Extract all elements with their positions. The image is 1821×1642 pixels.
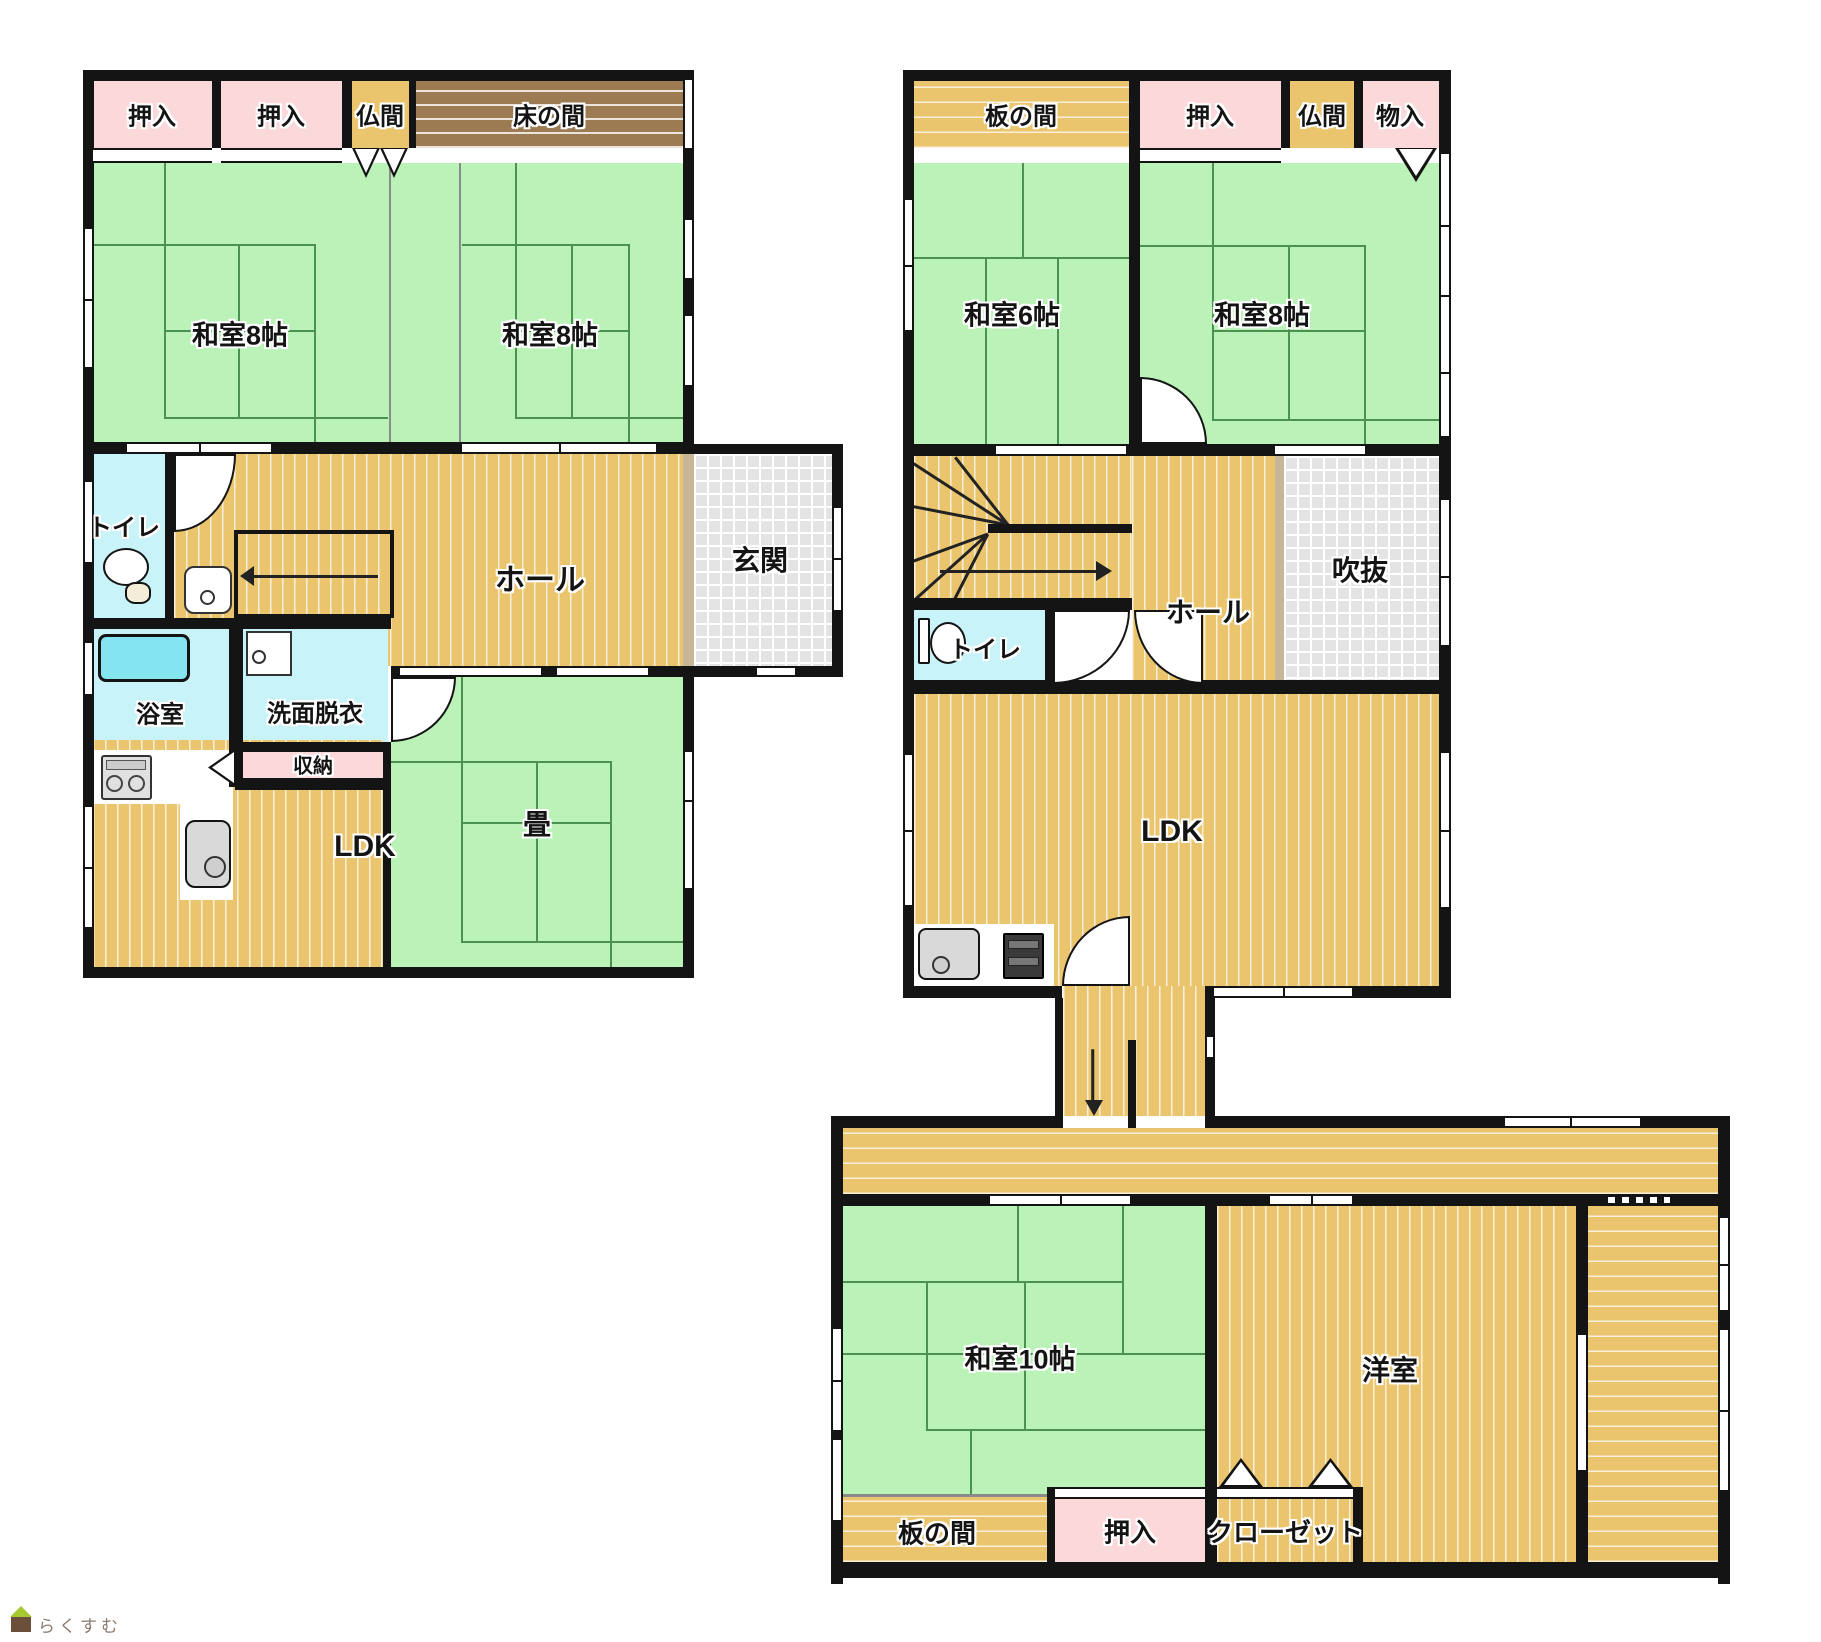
window-22 bbox=[1275, 444, 1365, 456]
room-label-16: 仏間 bbox=[1298, 97, 1346, 132]
window-tick-3 bbox=[1570, 1116, 1572, 1128]
room-label-20: ホール bbox=[1166, 591, 1250, 631]
corridor-annex bbox=[843, 1128, 1718, 1194]
window-tick-8 bbox=[683, 800, 694, 802]
window-10 bbox=[93, 148, 212, 163]
room-label-18: 和室6帖 bbox=[964, 294, 1060, 333]
wall-34 bbox=[903, 680, 1451, 694]
room-label-13: 畳 bbox=[523, 803, 551, 843]
wall-6 bbox=[342, 81, 352, 148]
room-label-24: 和室10帖 bbox=[964, 1338, 1075, 1377]
window-tick-7 bbox=[83, 867, 94, 869]
genkan-edge bbox=[683, 454, 694, 666]
window-tick-5 bbox=[1311, 1194, 1313, 1206]
window-15 bbox=[757, 666, 795, 677]
window-tick-1 bbox=[559, 442, 561, 454]
wall-9 bbox=[165, 454, 174, 618]
wall-42 bbox=[831, 1562, 1730, 1578]
room-label-14: 板の間 bbox=[985, 97, 1057, 132]
room-label-27: 押入 bbox=[1104, 1513, 1156, 1550]
wall-25 bbox=[1352, 986, 1451, 998]
window-4 bbox=[683, 80, 694, 148]
window-23 bbox=[1140, 148, 1281, 163]
room-label-7: ホール bbox=[495, 555, 585, 599]
window-25 bbox=[1205, 1037, 1215, 1057]
bathtub-1f bbox=[98, 634, 190, 682]
wall-39 bbox=[1205, 1116, 1730, 1128]
wall-28 bbox=[1354, 81, 1363, 148]
window-34 bbox=[1055, 1487, 1205, 1499]
wall-0 bbox=[83, 70, 694, 81]
tatami-line-1 bbox=[314, 244, 316, 442]
wall-5 bbox=[212, 81, 221, 148]
window-11 bbox=[221, 148, 342, 163]
sink-1f bbox=[185, 820, 231, 888]
tatami-line-14 bbox=[391, 761, 610, 763]
window-26 bbox=[1505, 1116, 1640, 1128]
logo: らくすむ bbox=[8, 1606, 208, 1636]
wall-38 bbox=[831, 1116, 1063, 1128]
window-tick-0 bbox=[199, 442, 201, 454]
wall-14 bbox=[235, 778, 391, 790]
tatami-line-35 bbox=[926, 1429, 1205, 1431]
wall-48 bbox=[1576, 1470, 1588, 1574]
tatami-line-6 bbox=[515, 163, 517, 417]
room-label-1: 押入 bbox=[257, 97, 305, 132]
window-tick-18 bbox=[1718, 1410, 1730, 1412]
room-label-17: 物入 bbox=[1376, 97, 1424, 132]
window-0 bbox=[83, 229, 94, 367]
wall-29 bbox=[1129, 148, 1140, 444]
stove-2f-grate-a bbox=[1008, 940, 1039, 949]
tatami-line-24 bbox=[1140, 245, 1364, 247]
stair-line-8 bbox=[1092, 1049, 1095, 1103]
washbasin-1f-drain bbox=[200, 590, 215, 605]
wall-32 bbox=[903, 598, 1132, 610]
toilet-2f-tank bbox=[918, 618, 930, 664]
window-tick-14 bbox=[1439, 576, 1451, 578]
wall-17 bbox=[683, 444, 843, 454]
room-label-0: 押入 bbox=[128, 97, 176, 132]
wall-36 bbox=[1205, 986, 1215, 1128]
tatami-line-23 bbox=[1364, 245, 1366, 444]
room-label-26: 板の間 bbox=[898, 1514, 976, 1551]
wall-26 bbox=[1129, 81, 1140, 148]
tatami-line-0 bbox=[164, 163, 166, 417]
room-label-19: 和室8帖 bbox=[1214, 294, 1310, 333]
room-label-12: LDK bbox=[334, 830, 396, 864]
tatami-line-8 bbox=[462, 244, 628, 246]
window-tick-9 bbox=[903, 265, 914, 267]
tatami-line-36 bbox=[970, 1429, 972, 1495]
tatami-line-30 bbox=[1122, 1206, 1124, 1353]
veranda-annex bbox=[1588, 1206, 1718, 1562]
wall-23 bbox=[903, 986, 1062, 998]
window-2 bbox=[83, 643, 94, 694]
stove-1f-bar bbox=[106, 760, 146, 770]
window-tick-10 bbox=[903, 830, 914, 832]
room-label-10: 洗面脱衣 bbox=[267, 694, 363, 729]
room-label-5: 和室8帖 bbox=[502, 314, 598, 353]
window-7 bbox=[683, 752, 694, 888]
tatami-line-19 bbox=[914, 257, 1129, 259]
window-tick-16 bbox=[832, 558, 843, 560]
wall-37 bbox=[1128, 1040, 1136, 1128]
tatami-line-21 bbox=[1057, 257, 1059, 444]
tatami-line-25 bbox=[1212, 419, 1439, 421]
tatami-line-28 bbox=[1017, 1206, 1019, 1281]
toilet-1f-bowl bbox=[103, 548, 149, 586]
stove-1f-burner-a bbox=[106, 775, 123, 792]
room-label-6: トイレ bbox=[88, 508, 160, 543]
dashed-opening-0 bbox=[1608, 1197, 1670, 1203]
window-21 bbox=[996, 444, 1126, 456]
stair-line-7 bbox=[940, 570, 1100, 573]
tatami-line-29 bbox=[843, 1281, 1122, 1283]
window-tick-11 bbox=[1439, 225, 1451, 227]
window-tick-6 bbox=[83, 299, 94, 301]
tatami-line-31 bbox=[1122, 1353, 1205, 1355]
tatami-line-16 bbox=[536, 761, 538, 941]
thin-line-2 bbox=[843, 1494, 1047, 1497]
logo-text: らくすむ bbox=[38, 1612, 122, 1637]
wall-27 bbox=[1281, 81, 1290, 148]
wall-31 bbox=[988, 524, 1132, 533]
door-arc-hall-2f-a bbox=[1053, 610, 1130, 684]
window-30 bbox=[831, 1440, 843, 1520]
room-label-21: 吹抜 bbox=[1332, 549, 1388, 589]
tatami-line-12 bbox=[461, 677, 463, 941]
tatami-line-20 bbox=[985, 257, 987, 444]
window-33 bbox=[1576, 1335, 1588, 1470]
wall-30 bbox=[903, 444, 1451, 456]
tatami-line-7 bbox=[628, 244, 630, 442]
logo-house-body-icon bbox=[11, 1617, 31, 1632]
tatami-line-9 bbox=[515, 417, 683, 419]
sink-1f-drain bbox=[204, 856, 226, 878]
tatami-line-18 bbox=[1022, 163, 1024, 257]
window-tick-2 bbox=[1283, 986, 1285, 998]
stairs-1f-treads bbox=[238, 534, 390, 614]
window-tick-13 bbox=[1439, 372, 1451, 374]
room-label-2: 仏間 bbox=[356, 97, 404, 132]
window-19 bbox=[1439, 500, 1451, 645]
tatami-line-3 bbox=[164, 417, 388, 419]
tatami-line-15 bbox=[461, 941, 683, 943]
stair-line-6 bbox=[252, 575, 378, 578]
room-label-8: 玄関 bbox=[732, 539, 788, 579]
stove-1f-burner-b bbox=[128, 775, 145, 792]
wall-7 bbox=[409, 81, 416, 148]
wall-45 bbox=[1047, 1487, 1055, 1574]
room-label-9: 浴室 bbox=[136, 695, 184, 730]
room-label-22: トイレ bbox=[949, 630, 1021, 665]
window-6 bbox=[683, 316, 694, 385]
wall-35 bbox=[1055, 998, 1063, 1128]
window-5 bbox=[683, 220, 694, 278]
thin-line-0 bbox=[389, 163, 391, 442]
wall-2 bbox=[83, 967, 694, 978]
washitsu8-1f-left bbox=[93, 163, 388, 442]
room-label-28: クローゼット bbox=[1207, 1513, 1363, 1550]
tatami-line-13 bbox=[610, 761, 612, 967]
room-label-11: 収納 bbox=[293, 750, 333, 779]
room-label-25: 洋室 bbox=[1362, 1349, 1418, 1389]
window-tick-17 bbox=[1718, 1264, 1730, 1266]
stairs-2f-upper-treads bbox=[1010, 458, 1132, 522]
window-tick-19 bbox=[831, 1380, 843, 1382]
wall-20 bbox=[903, 70, 1451, 81]
sink-2f bbox=[918, 928, 980, 980]
tatami-line-22 bbox=[1212, 163, 1214, 419]
washitsu8-strip bbox=[388, 163, 462, 442]
room-label-3: 床の間 bbox=[513, 97, 585, 132]
room-label-23: LDK bbox=[1141, 815, 1203, 849]
room-label-4: 和室8帖 bbox=[192, 314, 288, 353]
floor-plan-canvas: 押入押入仏間床の間和室8帖和室8帖トイレホール玄関浴室洗面脱衣収納LDK畳板の間… bbox=[0, 0, 1821, 1642]
tatami-line-2 bbox=[93, 244, 314, 246]
wall-10 bbox=[83, 618, 391, 629]
sink-2f-drain bbox=[932, 956, 950, 974]
stove-2f-grate-b bbox=[1008, 957, 1039, 966]
senmen-sink-drain bbox=[252, 650, 266, 664]
window-13 bbox=[557, 666, 648, 677]
room-label-15: 押入 bbox=[1186, 97, 1234, 132]
floor-plan-layer: 押入押入仏間床の間和室8帖和室8帖トイレホール玄関浴室洗面脱衣収納LDK畳板の間… bbox=[0, 0, 1821, 1642]
window-12 bbox=[400, 666, 541, 677]
window-tick-4 bbox=[1060, 1194, 1062, 1206]
window-tick-12 bbox=[1439, 295, 1451, 297]
wall-33 bbox=[1045, 610, 1053, 684]
tatami-line-32 bbox=[926, 1281, 928, 1429]
logo-house-roof-icon bbox=[10, 1606, 32, 1617]
window-35 bbox=[1217, 1487, 1353, 1499]
window-tick-15 bbox=[1439, 830, 1451, 832]
wall-47 bbox=[1576, 1206, 1588, 1335]
fukinuke-edge bbox=[1275, 456, 1284, 680]
thin-line-1 bbox=[459, 163, 461, 442]
toilet-1f-tank bbox=[125, 582, 151, 604]
